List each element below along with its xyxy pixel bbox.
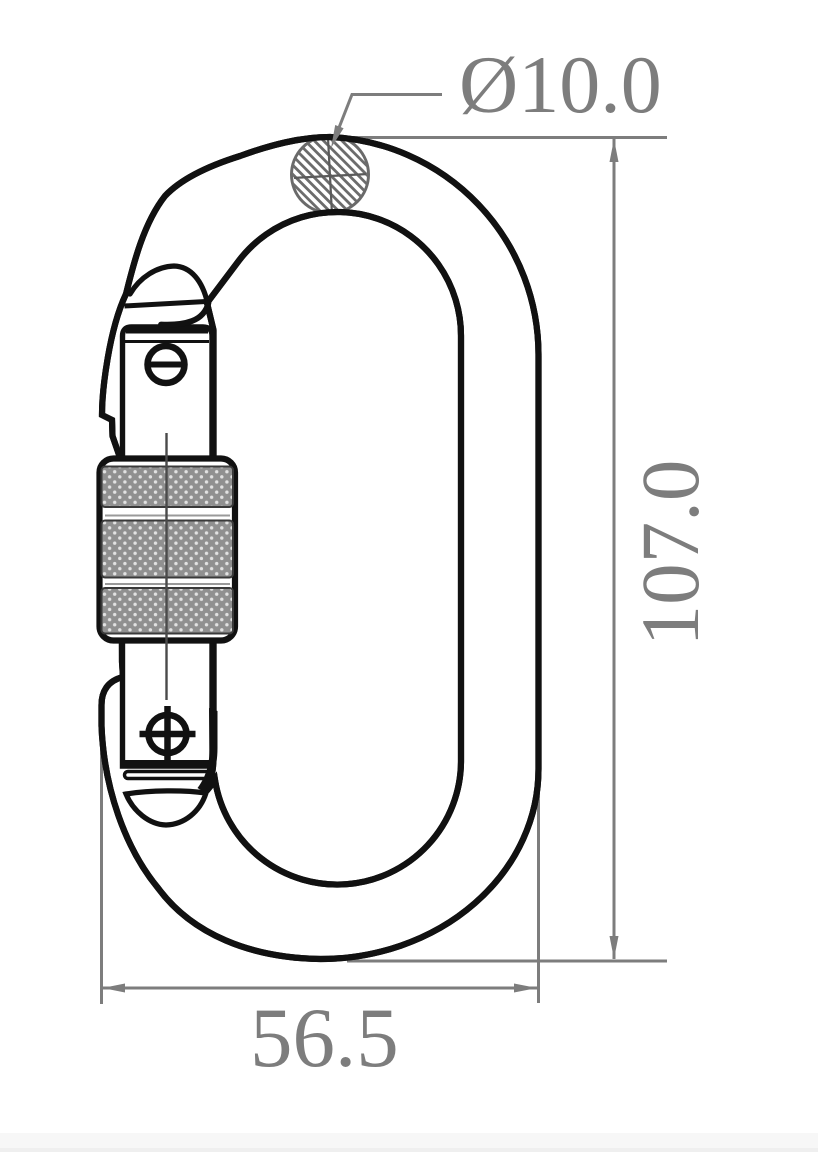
svg-text:56.5: 56.5 [250,991,399,1085]
svg-text:107.0: 107.0 [624,460,716,647]
svg-text:Ø10.0: Ø10.0 [459,39,662,130]
